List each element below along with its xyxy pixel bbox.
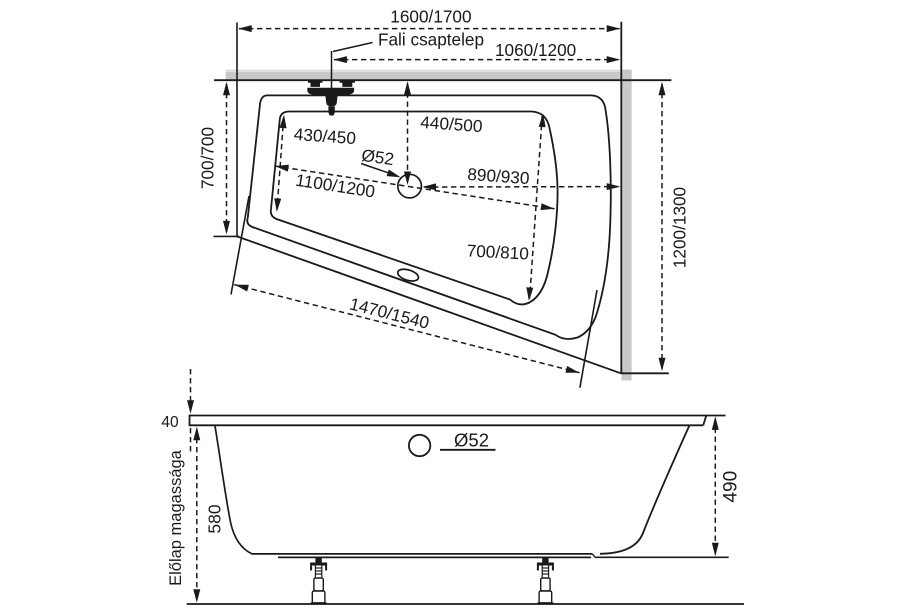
svg-text:1060/1200: 1060/1200 bbox=[495, 40, 576, 60]
svg-text:1600/1700: 1600/1700 bbox=[390, 7, 471, 27]
svg-text:490: 490 bbox=[721, 471, 742, 503]
svg-text:Ø52: Ø52 bbox=[454, 430, 489, 451]
svg-text:700/810: 700/810 bbox=[466, 240, 529, 263]
svg-text:700/700: 700/700 bbox=[198, 127, 218, 189]
svg-text:Előlap magassága: Előlap magassága bbox=[167, 449, 185, 586]
svg-text:Fali csaptelep: Fali csaptelep bbox=[378, 30, 484, 50]
svg-text:40: 40 bbox=[161, 414, 179, 431]
svg-text:580: 580 bbox=[204, 504, 224, 533]
svg-text:1200/1300: 1200/1300 bbox=[670, 187, 690, 268]
